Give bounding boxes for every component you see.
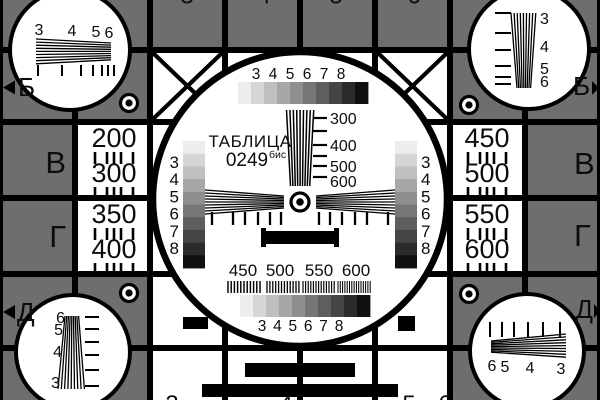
grayscale-digit-right: 4 xyxy=(421,170,430,189)
corner-wedge-digit: 3 xyxy=(540,11,549,28)
edge-digit-tip-top: 5 xyxy=(329,0,342,10)
grayscale-digit-right: 5 xyxy=(421,187,430,206)
bar-body xyxy=(261,231,339,244)
resolution-number: 300 xyxy=(91,158,136,188)
grayscale-digit-right: 3 xyxy=(421,153,430,172)
wedge-line xyxy=(71,316,72,389)
grayscale-step xyxy=(355,82,368,104)
grayscale-digit-bottom: 7 xyxy=(319,318,328,335)
corner-circle-bottom-right xyxy=(470,294,584,400)
grayscale-digit-top: 3 xyxy=(252,66,261,83)
grayscale-step xyxy=(395,205,417,218)
grayscale-digit-right: 6 xyxy=(421,205,430,224)
grayscale-step xyxy=(183,179,205,192)
registration-target xyxy=(121,95,138,112)
grayscale-digit-bottom: 8 xyxy=(335,318,344,335)
grayscale-step xyxy=(277,82,290,104)
grayscale-step xyxy=(183,217,205,230)
grayscale-step xyxy=(395,154,417,167)
grayscale-step xyxy=(251,82,264,104)
card-number-suffix: бис xyxy=(269,149,286,161)
corner-wedge-digit: 6 xyxy=(488,358,497,375)
registration-target xyxy=(121,285,138,302)
grayscale-step xyxy=(253,295,266,317)
grayscale-digit-top: 7 xyxy=(320,66,329,83)
grayscale-step xyxy=(303,82,316,104)
resolution-number: 550 xyxy=(464,199,509,229)
corner-wedge-digit: 3 xyxy=(51,375,60,392)
resolution-number: 600 xyxy=(464,234,509,264)
grayscale-step xyxy=(395,230,417,243)
bullseye-dot xyxy=(296,198,304,206)
corner-wedge-digit: 5 xyxy=(54,322,63,339)
resolution-number: 200 xyxy=(91,123,136,153)
registration-target xyxy=(461,286,478,303)
grayscale-bar-bottom xyxy=(240,295,370,317)
corner-wedge-digit: 3 xyxy=(35,22,44,39)
grayscale-digit-right: 7 xyxy=(421,222,430,241)
resolution-number: 450 xyxy=(464,123,509,153)
wedge-scale-label: 400 xyxy=(330,138,357,155)
grayscale-digit-top: 6 xyxy=(303,66,312,83)
grayscale-digit-right: 8 xyxy=(421,239,430,258)
grayscale-digit-bottom: 3 xyxy=(258,318,267,335)
wedge-line xyxy=(303,110,304,186)
grayscale-step xyxy=(183,230,205,243)
grayscale-step xyxy=(266,295,279,317)
grayscale-step xyxy=(290,82,303,104)
wedge-scale-label: 300 xyxy=(330,111,357,128)
grayscale-step xyxy=(395,243,417,256)
edge-digit-tip-bottom: 6 xyxy=(438,391,451,400)
corner-wedge-digit: 5 xyxy=(92,24,101,41)
target-dot xyxy=(465,101,472,108)
row-label-left-v: В xyxy=(45,145,66,180)
edge-digit-tip-top: 6 xyxy=(407,0,420,10)
corner-wedge-digit: 3 xyxy=(557,361,566,378)
grayscale-step xyxy=(318,295,331,317)
grayscale-step xyxy=(183,243,205,256)
edge-digit-tip-top: 4 xyxy=(257,0,270,10)
corner-wedge-digit: 4 xyxy=(53,344,62,361)
sync-bar-lower xyxy=(202,384,398,397)
registration-target xyxy=(461,97,478,114)
grayscale-digit-left: 7 xyxy=(170,222,179,241)
row-label-right-d: Д xyxy=(575,294,593,324)
grayscale-step xyxy=(183,166,205,179)
reference-rect-right xyxy=(398,316,415,331)
grayscale-step xyxy=(342,82,355,104)
grayscale-step xyxy=(395,179,417,192)
row-label-right-b: Б xyxy=(573,71,590,101)
burst-label: 450 xyxy=(229,261,257,280)
edge-digit-tip-bottom: 3 xyxy=(165,391,178,400)
wedge-line xyxy=(297,110,298,186)
resolution-number: 350 xyxy=(91,199,136,229)
grayscale-step xyxy=(183,205,205,218)
grayscale-step xyxy=(183,192,205,205)
reference-rect-left xyxy=(183,317,208,329)
test-card-svg: 34563456 3333444455556666777788883004005… xyxy=(0,0,600,400)
grayscale-digit-left: 3 xyxy=(170,153,179,172)
grayscale-digit-top: 8 xyxy=(337,66,346,83)
grayscale-step xyxy=(240,295,253,317)
burst-label: 550 xyxy=(305,261,333,280)
grayscale-step xyxy=(279,295,292,317)
test-card-screen: 34563456 3333444455556666777788883004005… xyxy=(0,0,600,400)
grayscale-digit-bottom: 5 xyxy=(288,318,297,335)
grayscale-strip-right xyxy=(395,141,417,268)
grayscale-step xyxy=(331,295,344,317)
target-dot xyxy=(465,290,472,297)
resolution-number: 500 xyxy=(464,158,509,188)
target-dot xyxy=(125,289,132,296)
grayscale-step xyxy=(344,295,357,317)
row-label-right-v: В xyxy=(574,146,595,181)
grayscale-step xyxy=(395,166,417,179)
grayscale-step xyxy=(238,82,251,104)
grayscale-digit-bottom: 6 xyxy=(304,318,313,335)
burst-label: 600 xyxy=(342,261,370,280)
resolution-cell-block: 450500550600 xyxy=(464,123,509,275)
grayscale-step xyxy=(316,82,329,104)
corner-wedge-digit: 5 xyxy=(501,359,510,376)
card-number: 0249 xyxy=(226,150,268,171)
grayscale-step xyxy=(395,255,417,268)
target-dot xyxy=(125,99,132,106)
grayscale-digit-left: 5 xyxy=(170,187,179,206)
resolution-number: 400 xyxy=(91,234,136,264)
corner-wedge-digit: 6 xyxy=(105,25,114,42)
grayscale-digit-left: 6 xyxy=(170,205,179,224)
corner-wedge-digit: 4 xyxy=(540,39,549,56)
corner-wedge-digit: 6 xyxy=(540,74,549,91)
grayscale-step xyxy=(264,82,277,104)
grayscale-step xyxy=(292,295,305,317)
grayscale-step xyxy=(395,141,417,154)
grayscale-step xyxy=(357,295,370,317)
row-label-left-g: Г xyxy=(49,219,66,254)
corner-wedge-digit: 4 xyxy=(68,23,77,40)
grayscale-step xyxy=(183,141,205,154)
grayscale-digit-top: 4 xyxy=(269,66,278,83)
resolution-cell-block: 200300350400 xyxy=(91,123,136,275)
grayscale-step xyxy=(305,295,318,317)
corner-wedge-digit: 4 xyxy=(526,360,535,377)
grayscale-digit-bottom: 4 xyxy=(273,318,282,335)
grayscale-digit-left: 8 xyxy=(170,239,179,258)
row-label-left-b: Б xyxy=(18,72,35,102)
grayscale-step xyxy=(183,154,205,167)
grayscale-digit-top: 5 xyxy=(286,66,295,83)
grayscale-strip-left xyxy=(183,141,205,268)
wedge-line xyxy=(491,348,566,349)
row-label-left-d: Д xyxy=(17,297,35,327)
burst-label: 500 xyxy=(266,261,294,280)
grayscale-step xyxy=(395,217,417,230)
grayscale-bar-top xyxy=(238,82,368,104)
grayscale-step xyxy=(395,192,417,205)
grayscale-digit-left: 4 xyxy=(170,170,179,189)
sync-bar-upper xyxy=(245,363,355,377)
edge-digit-tip-bottom: 5 xyxy=(402,391,415,400)
edge-digit-tip-top: 3 xyxy=(180,0,193,10)
grayscale-step xyxy=(329,82,342,104)
grayscale-step xyxy=(183,255,205,268)
wedge-scale-label: 600 xyxy=(330,174,357,191)
row-label-right-g: Г xyxy=(574,218,591,253)
